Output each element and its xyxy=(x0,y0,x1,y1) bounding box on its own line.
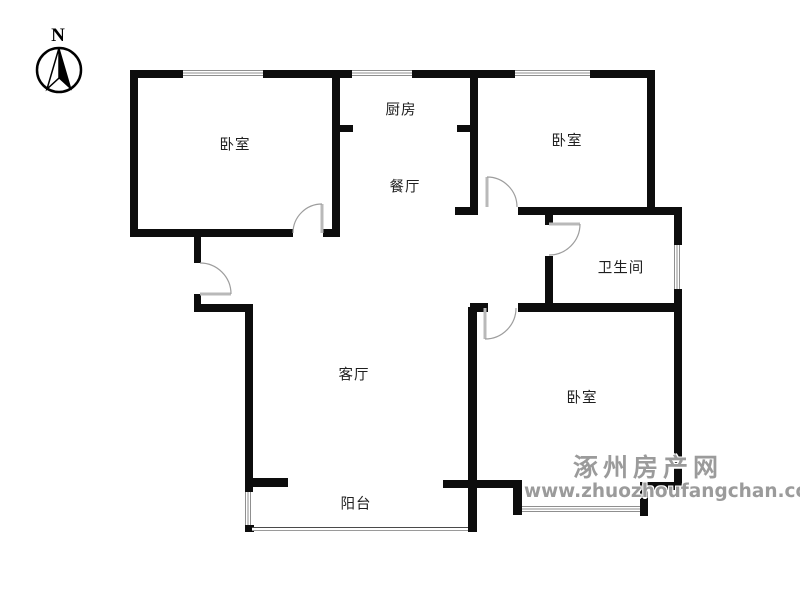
wall xyxy=(647,70,655,215)
wall xyxy=(590,70,655,78)
watermark-site-name: 涿州房产网 xyxy=(524,455,772,480)
watermark: 涿州房产网 www.zhuozhoufangchan.com xyxy=(524,455,772,502)
wall xyxy=(340,125,353,132)
wall xyxy=(194,237,201,263)
compass-needle-west xyxy=(47,48,59,89)
room-label-bedroom-se: 卧室 xyxy=(567,387,598,408)
wall xyxy=(518,303,682,312)
door-arc-bedroom-ne xyxy=(487,177,517,207)
wall xyxy=(518,207,682,215)
window-bedroom-se-bay xyxy=(522,506,640,514)
wall xyxy=(130,70,138,237)
window-bathroom xyxy=(674,245,682,289)
compass-needle-east xyxy=(59,48,71,89)
wall xyxy=(332,70,340,237)
room-label-balcony: 阳台 xyxy=(341,493,372,514)
compass-north-label: N xyxy=(51,25,65,47)
window-balcony-west xyxy=(245,492,253,525)
wall xyxy=(457,125,470,132)
window-bedroom-ne xyxy=(515,70,590,78)
wall xyxy=(245,304,253,492)
room-label-kitchen: 厨房 xyxy=(386,99,417,120)
wall xyxy=(468,307,477,532)
door-arc-bedroom-se xyxy=(485,308,516,339)
compass-circle xyxy=(37,48,81,92)
watermark-site-url: www.zhuozhoufangchan.com xyxy=(524,483,772,502)
window-bedroom-nw xyxy=(183,70,263,78)
floor-plan: N 卧室 厨房 餐厅 卧室 卫生间 客厅 卧室 阳台 涿州房产网 www.zhu… xyxy=(0,0,800,600)
wall xyxy=(513,488,522,515)
room-label-bedroom-nw: 卧室 xyxy=(220,134,251,155)
room-label-living: 客厅 xyxy=(339,364,370,385)
wall xyxy=(323,229,340,237)
door-arc-entry xyxy=(200,263,231,294)
wall xyxy=(130,229,293,237)
wall xyxy=(247,478,288,487)
wall xyxy=(194,304,252,312)
door-arc-bedroom-nw xyxy=(293,204,322,233)
wall xyxy=(470,70,478,215)
wall xyxy=(455,207,478,215)
room-label-dining: 餐厅 xyxy=(390,176,421,197)
wall xyxy=(443,480,522,488)
room-label-bathroom: 卫生间 xyxy=(598,257,645,278)
door-arc-bathroom xyxy=(549,224,580,255)
window-kitchen xyxy=(352,70,412,78)
balcony-railing xyxy=(252,527,468,531)
wall xyxy=(545,212,553,225)
wall xyxy=(412,70,515,78)
room-label-bedroom-ne: 卧室 xyxy=(552,130,583,151)
